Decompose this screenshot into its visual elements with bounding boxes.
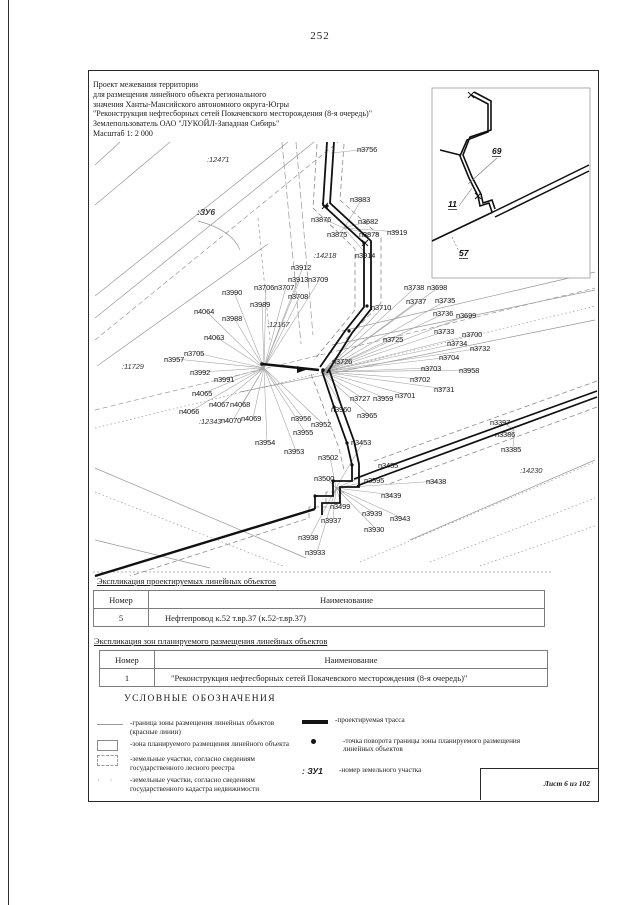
parcel-number-label: :11729 [122,362,144,371]
title-line: Проект межевания территории [93,80,433,90]
map-point-label: п4067 [209,400,229,409]
document-page: 252 [0,0,640,905]
map-point-label: п3725 [383,335,403,344]
map-point-label: п3756 [357,145,377,154]
parcel-number-label: :12167 [267,320,289,329]
table-cell: 5 [94,609,149,627]
table-cell: Нефтепровод к.52 т.вр.37 (к.52-т.вр.37) [149,609,545,627]
legend-text: -номер земельного участка [339,766,421,775]
map-point-label: п3990 [222,288,242,297]
map-point-label: п3705 [184,349,204,358]
map-point-label: п3500 [314,474,334,483]
map-point-label: п3386 [495,430,515,439]
map-point-label: п3876 [311,215,331,224]
map-point-label: п3878 [359,230,379,239]
inset-parcel-label: 11 [448,200,457,210]
legend-title: УСЛОВНЫЕ ОБОЗНАЧЕНИЯ [124,694,276,704]
parcel-number-label: :14218 [314,251,336,260]
map-point-label: п3704 [439,353,459,362]
map-point-label: п4064 [194,307,214,316]
map-point-label: п3930 [364,525,384,534]
table-header: Номер [94,591,149,609]
map-point-label: п3439 [381,491,401,500]
title-line: "Реконструкция нефтесборных сетей Покаче… [93,109,433,119]
legend-item: -проектируемая трасса [302,716,552,725]
title-line: значения Ханты-Мансийского автономного о… [93,100,433,110]
legend-item: -земельные участки, согласно сведениям г… [97,755,297,772]
legend-text: -земельные участки, согласно сведениям г… [130,776,297,793]
map-point-label: п3989 [250,300,270,309]
table-cell: "Реконструкция нефтесборных сетей Покаче… [155,669,548,687]
map-point-label: п3943 [390,514,410,523]
map-point-label: п3735 [435,296,455,305]
red-line-symbol [97,724,123,725]
zu-label-symbol: : ЗУ1 [302,766,332,776]
map-point-label: п3699 [456,311,476,320]
map-point-label: п3939 [362,509,382,518]
map-point-label: п3385 [501,445,521,454]
legend-text: -граница зоны размещения линейных объект… [130,719,297,736]
map-point-label: п3952 [311,420,331,429]
map-point-label: п3738 [404,283,424,292]
map-point-label: п3992 [190,368,210,377]
table-header: Наименование [149,591,545,609]
map-point-label: п3955 [293,428,313,437]
dot-symbol [311,739,316,744]
legend-text: -проектируемая трасса [335,716,405,725]
linear-objects-table: НомерНаименование5Нефтепровод к.52 т.вр.… [93,590,545,627]
parcel-number-label: :14230 [520,466,542,475]
map-point-label: п3883 [350,195,370,204]
map-point-label: п3959 [373,394,393,403]
map-point-label: п3988 [222,314,242,323]
map-point-label: п3595 [364,476,384,485]
map-point-label: п4068 [230,400,250,409]
map-point-label: п3734 [447,339,467,348]
map-point-label: п3438 [426,477,446,486]
map-point-label: п3703 [421,364,441,373]
map-point-label: п4066 [179,407,199,416]
legend-item: -зона планируемого размещения линейного … [97,740,297,751]
map-point-label: п3499 [330,502,350,511]
legend-text: -земельные участки, согласно сведениям г… [130,755,297,772]
parcel-number-label: :12471 [207,155,229,164]
map-point-label: п3957 [164,355,184,364]
title-block: Проект межевания территориидля размещени… [93,80,433,139]
inset-overview-map [432,88,590,278]
parcel-number-label: :ЗУ6 [197,207,215,217]
map-point-label: п3733 [434,327,454,336]
map-point-label: п3455 [378,461,398,470]
table-row: 1"Реконструкция нефтесборных сетей Покач… [100,669,548,687]
title-line: для размещения линейного объекта региона… [93,90,433,100]
map-point-label: п3726 [332,357,352,366]
map-point-label: п3991 [214,375,234,384]
table-caption-linear-objects: Экспликация проектируемых линейных объек… [97,576,276,586]
rect-symbol [97,740,118,751]
sheet-number-label: Лист 6 из 102 [544,779,590,788]
dots-symbol: · · [97,776,123,785]
legend-left-column: -граница зоны размещения линейных объект… [97,719,297,798]
map-point-label: п3953 [284,447,304,456]
placement-zones-table: НомерНаименование1"Реконструкция нефтесб… [99,650,548,687]
map-point-label: п3707 [274,283,294,292]
map-point-label: п3700 [462,330,482,339]
map-point-label: п3965 [357,411,377,420]
map-point-label: п4070 [221,416,241,425]
map-point-label: п3737 [406,297,426,306]
map-point-label: п3710 [371,303,391,312]
table-header: Наименование [155,651,548,669]
map-point-label: п3698 [427,283,447,292]
map-point-label: п3708 [288,292,308,301]
inset-parcel-label: 57 [459,249,468,259]
map-point-label: п3682 [358,217,378,226]
legend-text: -точка поворота границы зоны планируемог… [343,737,552,754]
map-point-label: п4065 [192,389,212,398]
map-point-label: п3453 [351,438,371,447]
title-line: Масштаб 1: 2 000 [93,129,433,139]
map-point-label: п3960 [331,405,351,414]
map-point-label: п3875 [327,230,347,239]
map-point-label: п3938 [298,533,318,542]
map-point-label: п4069 [241,414,261,423]
map-point-label: п3937 [321,516,341,525]
map-point-label: п3933 [305,548,325,557]
map-point-label: п3956 [291,414,311,423]
map-point-label: п3706 [254,283,274,292]
map-point-label: п3701 [395,391,415,400]
dashed-rect-symbol [97,755,118,766]
map-point-label: п4063 [204,333,224,342]
table-row: 5Нефтепровод к.52 т.вр.37 (к.52-т.вр.37) [94,609,545,627]
legend-item: -граница зоны размещения линейных объект… [97,719,297,736]
map-point-label: п3958 [459,366,479,375]
map-point-label: п3502 [318,453,338,462]
map-point-label: п3736 [433,309,453,318]
map-point-label: п3954 [255,438,275,447]
map-point-label: п3702 [410,375,430,384]
legend-text: -зона планируемого размещения линейного … [130,740,289,749]
sheet-number-box: Лист 6 из 102 [480,768,598,800]
map-point-label: п3397 [490,418,510,427]
thick-line-symbol [302,720,328,724]
table-caption-placement-zones: Экспликация зон планируемого размещения … [94,636,327,646]
turn-point-dots [260,204,368,497]
inset-parcel-label: 69 [492,147,501,157]
map-point-label: п3732 [470,344,490,353]
title-line: Землепользователь ОАО "ЛУКОЙЛ-Западная С… [93,119,433,129]
table-cell: 1 [100,669,155,687]
legend-item: · ·-земельные участки, согласно сведения… [97,776,297,793]
map-point-label: п3912 [291,263,311,272]
map-point-label: п3914 [355,251,375,260]
map-point-label: п3727 [350,394,370,403]
legend-item: -точка поворота границы зоны планируемог… [302,737,552,754]
parcel-number-label: :12343 [199,417,221,426]
map-point-label: п3731 [434,385,454,394]
table-header: Номер [100,651,155,669]
map-point-label: п3709 [308,275,328,284]
map-point-label: п3919 [387,228,407,237]
